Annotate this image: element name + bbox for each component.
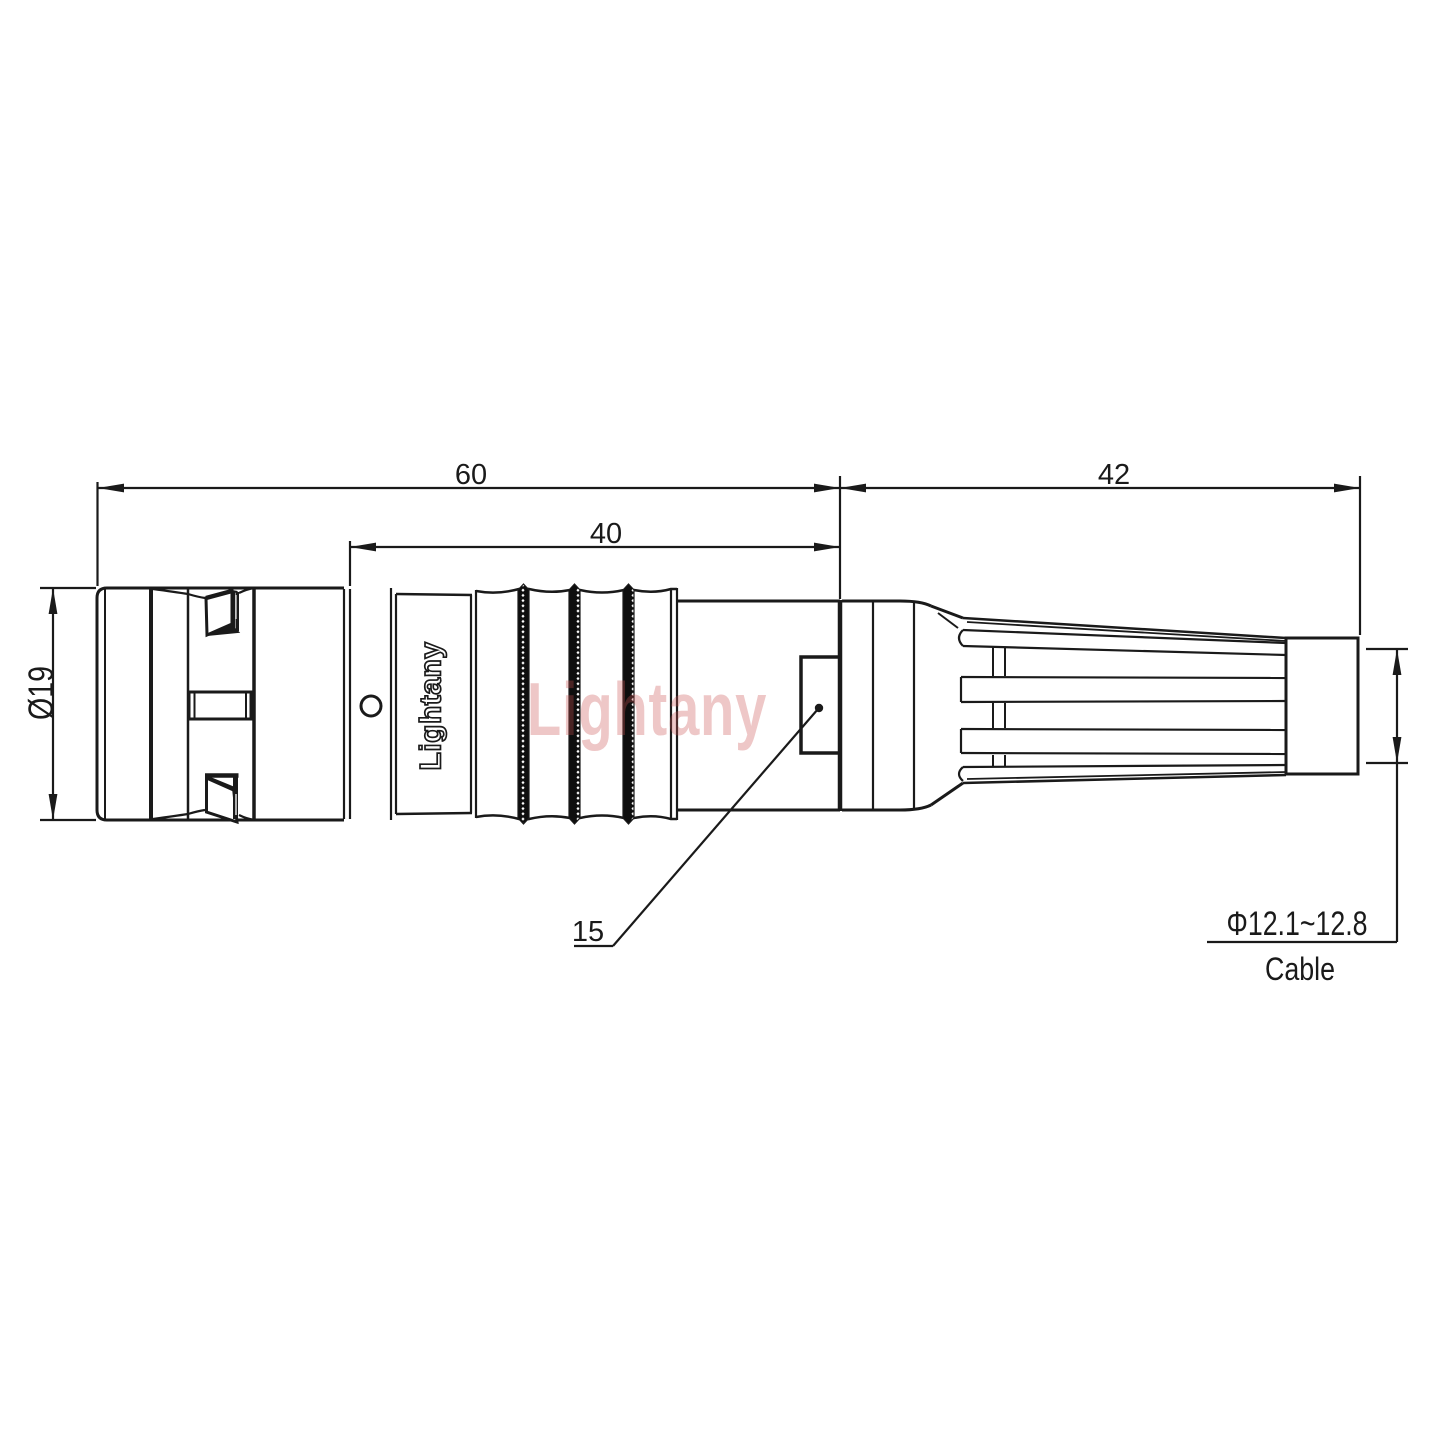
svg-text:42: 42 [1098, 459, 1130, 491]
svg-text:Lightany: Lightany [415, 642, 448, 771]
svg-text:Cable: Cable [1265, 951, 1335, 987]
svg-text:40: 40 [590, 518, 622, 550]
svg-text:60: 60 [455, 459, 487, 491]
svg-text:Φ12.1~12.8: Φ12.1~12.8 [1227, 905, 1368, 943]
svg-text:Ø19: Ø19 [22, 666, 61, 720]
svg-text:Lightany: Lightany [527, 668, 767, 752]
svg-text:15: 15 [572, 916, 604, 948]
